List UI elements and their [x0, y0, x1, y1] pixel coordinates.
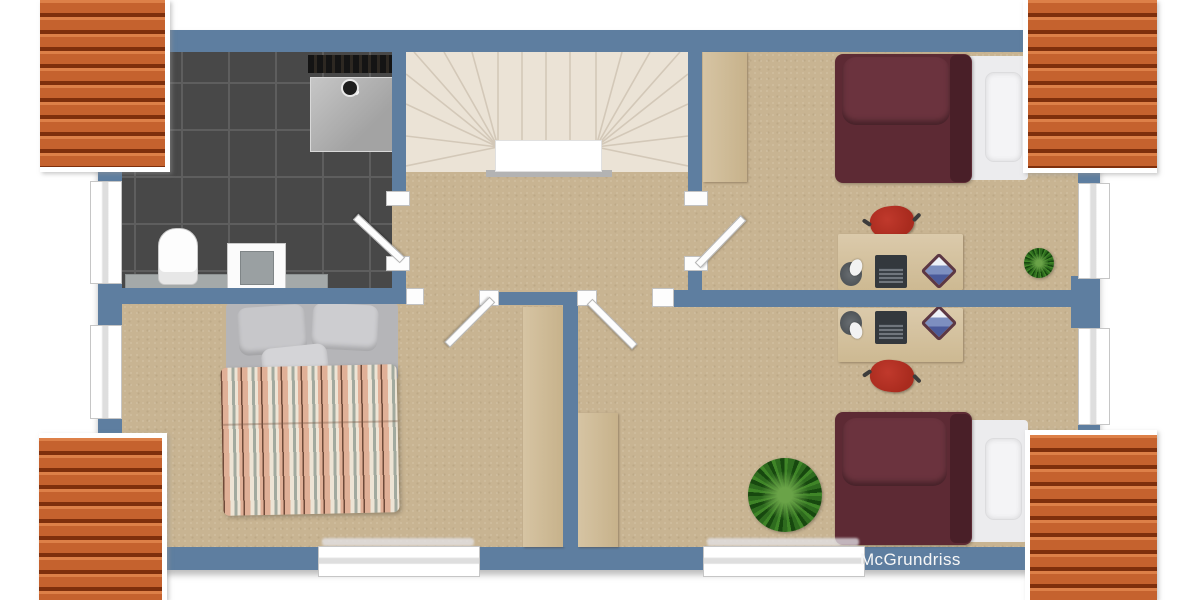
window-bedroom-left: [90, 325, 122, 419]
wall-bathroom-bottom: [98, 288, 410, 304]
watermark: McGrundriss: [860, 550, 961, 570]
roof-section-bottom-left: [39, 433, 167, 600]
bathroom-dark-shelf: [308, 55, 392, 73]
shower: [310, 77, 394, 152]
wardrobe-bottom-right-room: [578, 413, 618, 547]
bed-tr-duvet-fold: [950, 55, 971, 182]
window-top-right: [1078, 183, 1110, 279]
roof-section-bottom-right: [1025, 430, 1157, 600]
roof-section-top-left: [40, 0, 170, 172]
wall-bathroom-right: [392, 52, 406, 193]
laptop-top: [875, 255, 907, 288]
shower-head-icon: [343, 81, 357, 95]
roof-section-top-right: [1023, 0, 1157, 173]
wall-pillar-right: [1071, 276, 1100, 328]
door-jamb: [652, 288, 674, 307]
bed-br-duvet-fold: [950, 414, 971, 543]
floorplan-canvas: McGrundriss: [0, 0, 1200, 600]
sink: [227, 243, 286, 293]
curtain: [322, 538, 474, 546]
wall-stairwell-right: [688, 52, 702, 193]
plant-bottom-right: [748, 458, 822, 532]
door-jamb: [406, 288, 424, 305]
plant-small-top-right: [1024, 248, 1054, 278]
door-jamb: [386, 191, 410, 206]
window-bedroom-bottom: [318, 546, 480, 577]
wardrobe-top-right-room: [703, 52, 747, 182]
stair-landing: [495, 140, 602, 172]
wall-mid-right: [656, 290, 1100, 307]
striped-blanket: [220, 364, 399, 516]
bed-br-pillow-white: [985, 438, 1022, 520]
bed-tr-pillow-maroon: [842, 57, 950, 125]
bed-br-pillow-maroon: [842, 418, 947, 486]
wall-center-vertical: [563, 292, 578, 547]
toilet: [158, 228, 198, 285]
sink-basin: [240, 251, 274, 285]
window-bathroom-left: [90, 181, 122, 284]
laptop-bottom: [875, 311, 907, 344]
door-jamb: [684, 191, 708, 206]
window-bottom-right-side: [1078, 328, 1110, 425]
window-bottom-right-bottom: [703, 546, 865, 577]
bed-tr-pillow-white: [985, 72, 1022, 162]
curtain: [707, 538, 859, 546]
wardrobe-bedroom: [523, 307, 563, 547]
